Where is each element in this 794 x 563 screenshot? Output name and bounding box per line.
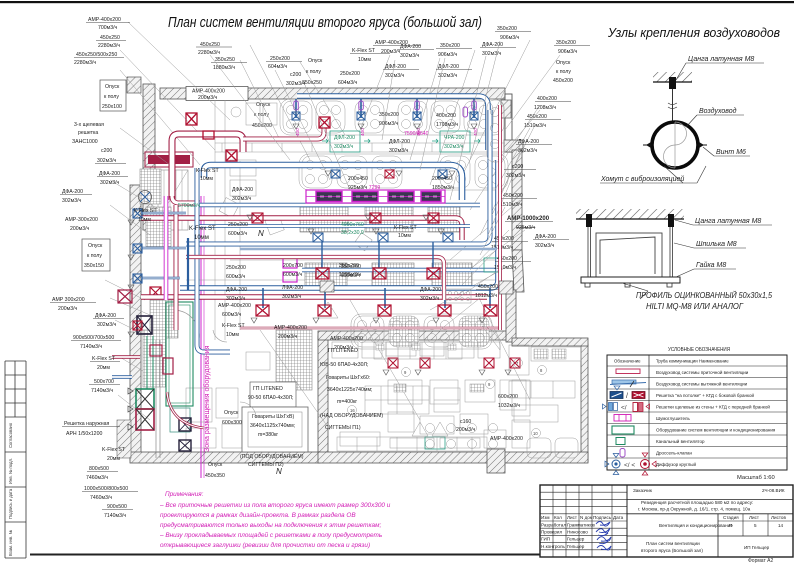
svg-text:Зона размещения оборудования: Зона размещения оборудования: [203, 345, 211, 452]
svg-text:ГИП: ГИП: [541, 537, 550, 542]
svg-text:Шумоглушитель: Шумоглушитель: [656, 416, 690, 421]
svg-text:350х200: 350х200: [497, 26, 517, 32]
svg-text:ДФЛ-200: ДФЛ-200: [385, 64, 406, 70]
svg-text:АМР-1000х200: АМР-1000х200: [507, 216, 550, 222]
svg-text:к полу: к полу: [87, 253, 102, 259]
svg-text:ПРОФИЛЬ ОЦИНКОВАННЫЙ 50х30х1,5: ПРОФИЛЬ ОЦИНКОВАННЫЙ 50х30х1,5: [636, 291, 772, 300]
svg-text:АМР-400х200: АМР-400х200: [88, 17, 121, 23]
svg-text:ЮБ-50 6ПА0-4х30Л;: ЮБ-50 6ПА0-4х30Л;: [320, 362, 368, 368]
svg-text:7590/4640: 7590/4640: [404, 131, 429, 137]
svg-text:250х200: 250х200: [226, 265, 246, 271]
svg-text:ДФА-200: ДФА-200: [62, 189, 83, 195]
svg-text:K-Flex ST: K-Flex ST: [92, 356, 116, 362]
svg-text:3-х щелевая: 3-х щелевая: [74, 122, 104, 128]
svg-text:10мм: 10мм: [138, 217, 151, 223]
svg-text:10мм: 10мм: [358, 57, 371, 63]
svg-text:Говариты ШхГхВ): Говариты ШхГхВ): [252, 414, 294, 420]
svg-text:ДФА-200: ДФА-200: [420, 287, 441, 293]
svg-text:ДФЛ-200: ДФЛ-200: [334, 135, 355, 141]
svg-text:Инв. № подл.: Инв. № подл.: [8, 458, 13, 484]
svg-text:302м3/ч: 302м3/ч: [97, 158, 117, 164]
svg-text:Цанга латунная М8: Цанга латунная М8: [695, 218, 761, 225]
svg-text:1708м3/ч: 1708м3/ч: [436, 122, 458, 128]
svg-text:90-50 6ПА0-4х30Л;: 90-50 6ПА0-4х30Л;: [248, 395, 294, 401]
svg-text:ГП LITENED: ГП LITENED: [253, 386, 283, 392]
svg-text:открывающиеся заглушки (ревизи: открывающиеся заглушки (ревизии для проч…: [160, 541, 370, 549]
svg-text:10мм: 10мм: [194, 235, 209, 241]
svg-text:600х200: 600х200: [498, 394, 518, 400]
svg-text:2Ч-08.ВИК: 2Ч-08.ВИК: [762, 488, 785, 493]
svg-text:1208м3/ч: 1208м3/ч: [534, 105, 556, 111]
svg-text:302м3/ч: 302м3/ч: [62, 198, 82, 204]
svg-text:1880м3/ч: 1880м3/ч: [213, 65, 235, 71]
svg-text:302м3/ч: 302м3/ч: [400, 53, 420, 59]
svg-text:1000х500/800х500: 1000х500/800х500: [84, 486, 128, 492]
svg-text:АМР-400х200: АМР-400х200: [330, 336, 363, 342]
svg-text:Лист: Лист: [567, 515, 578, 520]
svg-text:План систем вентиляции второго: План систем вентиляции второго яруса (бо…: [168, 15, 482, 31]
svg-text:302м3/ч: 302м3/ч: [100, 180, 120, 186]
svg-text:450х200: 450х200: [503, 193, 523, 199]
svg-text:302м3/ч: 302м3/ч: [282, 294, 302, 300]
svg-text:302м3/ч: 302м3/ч: [334, 144, 354, 150]
svg-text:Воздуховод системы вытяжной ве: Воздуховод системы вытяжной вентиляции: [656, 381, 748, 387]
svg-text:(ПОД ОБОРУДОВАНИЕМ): (ПОД ОБОРУДОВАНИЕМ): [240, 454, 304, 460]
svg-text:600м3/ч: 600м3/ч: [222, 312, 242, 318]
svg-text:ЛФА-200: ЛФА-200: [282, 285, 303, 291]
svg-text:20мм: 20мм: [107, 456, 120, 462]
svg-text:302м3/ч: 302м3/ч: [482, 51, 502, 57]
svg-text:450х200: 450х200: [252, 123, 272, 129]
svg-text:АМР-400х200: АМР-400х200: [490, 436, 523, 442]
svg-text:5: 5: [754, 523, 757, 528]
svg-text:500х700: 500х700: [94, 379, 114, 385]
svg-text:7460м3/ч: 7460м3/ч: [90, 495, 112, 501]
svg-text:N док: N док: [580, 515, 593, 520]
svg-text:УСЛОВНЫЕ ОБОЗНАЧЕНИЯ: УСЛОВНЫЕ ОБОЗНАЧЕНИЯ: [668, 347, 730, 353]
svg-text:K-Flex ST: K-Flex ST: [352, 48, 376, 54]
svg-text:1510м3/ч: 1510м3/ч: [524, 123, 546, 129]
svg-text:200м3/ч: 200м3/ч: [198, 95, 218, 101]
svg-text:ЗАНС1000: ЗАНС1000: [72, 139, 98, 145]
svg-text:ГП LITENED: ГП LITENED: [328, 348, 358, 354]
svg-text:7140м3/ч: 7140м3/ч: [91, 388, 113, 394]
svg-text:Разработал: Разработал: [541, 523, 566, 528]
svg-text:ДФА-200: ДФА-200: [95, 313, 116, 319]
svg-text:Кол: Кол: [554, 515, 562, 520]
svg-text:K-Flex ST: K-Flex ST: [102, 447, 126, 453]
svg-text:1032м3/ч: 1032м3/ч: [498, 403, 520, 409]
svg-text:к полу: к полу: [556, 69, 571, 75]
svg-text:10мм: 10мм: [226, 332, 239, 338]
svg-text:Шпилька М8: Шпилька М8: [696, 241, 737, 248]
svg-text:с200: с200: [101, 148, 112, 154]
svg-text:20мм: 20мм: [97, 365, 110, 371]
svg-text:Лист: Лист: [749, 515, 760, 520]
svg-text:ДФА-200: ДФА-200: [232, 187, 253, 193]
svg-text:1510м3/ч: 1510м3/ч: [500, 202, 522, 208]
svg-text:План систем вентиляции: План систем вентиляции: [646, 541, 700, 546]
svg-text:250х200: 250х200: [340, 71, 360, 77]
svg-text:Опуск: Опуск: [308, 58, 323, 64]
svg-text:7140м3/ч: 7140м3/ч: [104, 513, 126, 519]
svg-text:450х250: 450х250: [100, 35, 120, 41]
svg-text:АМР-400х200: АМР-400х200: [218, 303, 251, 309]
svg-text:400х200: 400х200: [436, 113, 456, 119]
svg-text:Опуск: Опуск: [208, 462, 223, 468]
svg-text:3640х1225х740мм;: 3640х1225х740мм;: [327, 387, 373, 393]
svg-text:Обозначение: Обозначение: [614, 359, 641, 364]
svg-text:с200: с200: [290, 72, 301, 78]
svg-text:Решетка "на потолке" + КГД с б: Решетка "на потолке" + КГД с боковой бра…: [656, 392, 754, 398]
svg-text:проектируются в рамках дизайн-: проектируются в рамках дизайн-проекта. В…: [160, 511, 356, 519]
svg-text:ДФА-200: ДФА-200: [99, 171, 120, 177]
svg-text:3640х1125х740мм;: 3640х1125х740мм;: [250, 423, 295, 429]
svg-text:450х250/500х250: 450х250/500х250: [76, 52, 117, 58]
svg-text:Опуск: Опуск: [105, 84, 120, 90]
svg-text:АМР-400х200: АМР-400х200: [192, 89, 225, 95]
svg-text:</: </: [621, 405, 627, 412]
svg-text:1208м3/ч: 1208м3/ч: [339, 272, 361, 278]
svg-text:604м3/ч: 604м3/ч: [338, 80, 358, 86]
svg-text:К-Flex ST: К-Flex ST: [222, 323, 245, 329]
svg-text:ИП Гельцер: ИП Гельцер: [744, 545, 770, 550]
svg-text:Взам. инв. №: Взам. инв. №: [8, 530, 13, 556]
svg-text:Н.контроль: Н.контроль: [541, 544, 566, 549]
svg-text:Ниносово: Ниносово: [567, 530, 588, 535]
svg-text:Изм: Изм: [541, 515, 550, 520]
svg-text:900х500/700х500: 900х500/700х500: [73, 335, 114, 341]
svg-text:m=400кг: m=400кг: [337, 399, 357, 405]
svg-text:Диффузор круглый: Диффузор круглый: [656, 461, 697, 467]
svg-text:ДФА-200: ДФА-200: [535, 234, 556, 240]
svg-text:906м3/ч: 906м3/ч: [558, 49, 578, 55]
svg-text:302м3/ч: 302м3/ч: [385, 73, 405, 79]
svg-text:200х450: 200х450: [348, 176, 368, 182]
svg-text:900х500: 900х500: [107, 504, 127, 510]
svg-text:Формат А2: Формат А2: [748, 558, 773, 563]
svg-text:2280м3/ч: 2280м3/ч: [74, 60, 96, 66]
svg-text:302м3/ч: 302м3/ч: [286, 81, 306, 87]
svg-text:450х200: 450х200: [527, 114, 547, 120]
svg-text:906м3/ч: 906м3/ч: [438, 52, 458, 58]
svg-text:</ <: </ <: [624, 462, 635, 469]
svg-text:250х200: 250х200: [228, 222, 248, 228]
svg-text:СИГТЕМЫ П1): СИГТЕМЫ П1): [325, 425, 361, 431]
svg-text:600м3/ч: 600м3/ч: [226, 274, 246, 280]
svg-text:350х200: 350х200: [556, 40, 576, 46]
svg-text:Гельцер: Гельцер: [567, 544, 585, 549]
svg-text:2280м3/ч: 2280м3/ч: [198, 50, 220, 56]
svg-text:1850м3/ч: 1850м3/ч: [432, 185, 454, 191]
svg-text:к полу: к полу: [306, 69, 321, 75]
svg-text:10мм: 10мм: [398, 233, 411, 239]
svg-text:П: П: [729, 523, 732, 528]
svg-text:925м3/ч: 925м3/ч: [516, 225, 536, 231]
svg-text:600м3/ч: 600м3/ч: [283, 272, 303, 278]
svg-text:10: 10: [533, 431, 538, 436]
svg-text:К-Flex ST: К-Flex ST: [394, 225, 417, 231]
svg-text:Дроссель-клапан: Дроссель-клапан: [656, 451, 692, 456]
svg-text:700м3/ч: 700м3/ч: [98, 25, 118, 31]
svg-text:второго яруса (Большой зал): второго яруса (Большой зал): [641, 547, 703, 553]
svg-text:Воздуховод: Воздуховод: [699, 107, 737, 115]
svg-text:Цанга латунная М8: Цанга латунная М8: [688, 56, 754, 63]
svg-text:450х200: 450х200: [494, 236, 514, 242]
svg-text:604м3/ч: 604м3/ч: [268, 64, 288, 70]
svg-text:АРН 1/50х1200: АРН 1/50х1200: [66, 431, 102, 437]
svg-text:Вентиляция и кондиционирование: Вентиляция и кондиционирование: [659, 523, 733, 528]
svg-text:m=380кг: m=380кг: [258, 432, 278, 438]
svg-text:Гайка М8: Гайка М8: [696, 261, 726, 269]
svg-text:1510м3/ч: 1510м3/ч: [494, 265, 516, 271]
svg-text:АМР 300х200: АМР 300х200: [52, 297, 85, 303]
svg-text:350х200: 350х200: [379, 112, 399, 118]
svg-text:N: N: [276, 467, 282, 476]
svg-text:Узлы крепления воздуховодов: Узлы крепления воздуховодов: [607, 25, 780, 40]
svg-text:350х200: 350х200: [339, 263, 359, 269]
svg-text:38,2х30,9: 38,2х30,9: [341, 230, 364, 236]
svg-text:к полу: к полу: [254, 112, 269, 118]
svg-text:Подпись: Подпись: [593, 515, 612, 520]
svg-text:10мм: 10мм: [200, 176, 213, 182]
svg-text:302м3/ч: 302м3/ч: [389, 148, 409, 154]
svg-text:302м3/ч: 302м3/ч: [97, 322, 117, 328]
svg-text:450х200: 450х200: [553, 78, 573, 84]
svg-text:14: 14: [778, 523, 784, 528]
svg-text:Труба коммуникации Наименова: Труба коммуникации Наименование: [656, 359, 729, 364]
svg-text:K-Flex ST: K-Flex ST: [189, 226, 216, 232]
svg-text:– Все приточные решетки из пол: – Все приточные решетки из пола второго …: [159, 502, 391, 509]
svg-text:600м3/ч: 600м3/ч: [228, 231, 248, 237]
svg-text:Воздуховод системы приточной в: Воздуховод системы приточной вентиляции: [656, 369, 749, 375]
svg-text:Дата: Дата: [613, 515, 624, 520]
svg-text:302м3/ч: 302м3/ч: [444, 144, 464, 150]
svg-text:г. Москва, пр-д Окружной, д. 1: г. Москва, пр-д Окружной, д. 16/1, стр. …: [638, 506, 751, 512]
svg-text:302м3/ч: 302м3/ч: [535, 243, 555, 249]
svg-text:200х450: 200х450: [432, 176, 452, 182]
svg-text:Примечания:: Примечания:: [165, 491, 204, 498]
svg-text:400х200: 400х200: [537, 96, 557, 102]
svg-text:Подпись и дата: Подпись и дата: [8, 488, 13, 519]
svg-text:АМР-300х200: АМР-300х200: [65, 217, 98, 223]
svg-text:200м3/ч: 200м3/ч: [278, 334, 298, 340]
svg-text:302м3/ч: 302м3/ч: [518, 148, 538, 154]
svg-text:Канальный вентилятор: Канальный вентилятор: [656, 438, 705, 444]
svg-text:250х100: 250х100: [102, 104, 122, 110]
svg-text:Листов: Листов: [771, 515, 786, 520]
svg-text:5700м3/ч: 5700м3/ч: [178, 203, 200, 209]
svg-text:Резиденция расчетной площадью: Резиденция расчетной площадью 580 м2 по …: [641, 499, 753, 505]
svg-text:906м3/ч: 906м3/ч: [379, 121, 399, 127]
svg-text:К-Flex ST: К-Flex ST: [196, 168, 219, 174]
svg-text:– Внизу прокладываемых площаде: – Внизу прокладываемых площадей с решетк…: [159, 531, 382, 539]
svg-text:302м3/ч: 302м3/ч: [420, 296, 440, 302]
svg-text:7460м3/ч: 7460м3/ч: [86, 475, 108, 481]
svg-text:800х500: 800х500: [89, 466, 109, 472]
svg-text:ДФЛ-200: ДФЛ-200: [438, 64, 459, 70]
svg-text:1812м3/ч: 1812м3/ч: [475, 293, 497, 299]
svg-text:600х300: 600х300: [222, 420, 242, 426]
svg-text:925м3/ч 7299: 925м3/ч 7299: [348, 185, 380, 191]
svg-text:2280м3/ч: 2280м3/ч: [98, 43, 120, 49]
svg-text:7140м3/ч: 7140м3/ч: [80, 344, 102, 350]
svg-text:450х200: 450х200: [478, 284, 498, 290]
svg-text:350х200: 350х200: [440, 43, 460, 49]
svg-text:К-Flex ST: К-Flex ST: [134, 208, 157, 214]
svg-text:200х700: 200х700: [283, 263, 303, 269]
svg-text:200м3/ч: 200м3/ч: [381, 49, 401, 55]
svg-text:/: /: [626, 393, 628, 400]
svg-text:350х150: 350х150: [84, 263, 104, 269]
svg-text:(НАД ОБОРУДОВАНИЕМ): (НАД ОБОРУДОВАНИЕМ): [320, 413, 383, 419]
svg-text:Опуск: Опуск: [88, 243, 103, 249]
svg-text:решетка: решетка: [78, 130, 98, 136]
svg-text:Хомут с виброизоляцией: Хомут с виброизоляцией: [600, 175, 684, 183]
svg-text:Заказчик: Заказчик: [633, 488, 653, 493]
svg-text:АМР-400х200: АМР-400х200: [274, 325, 307, 331]
svg-text:Решетка наружная: Решетка наружная: [64, 421, 110, 427]
svg-text:ДФА-200: ДФА-200: [226, 287, 247, 293]
svg-text:HILTI MQ-М8 ИЛИ АНАЛОГ: HILTI MQ-М8 ИЛИ АНАЛОГ: [646, 302, 744, 311]
svg-text:Масштаб 1:60: Масштаб 1:60: [737, 475, 775, 481]
svg-text:200м3/ч: 200м3/ч: [70, 226, 90, 232]
svg-text:906м3/ч: 906м3/ч: [500, 35, 520, 41]
svg-text:Оборудование систем вентиляции: Оборудование систем вентиляции и кондици…: [656, 428, 776, 433]
svg-text:АМР-400х200: АМР-400х200: [375, 40, 408, 46]
svg-text:к полу: к полу: [104, 94, 119, 100]
svg-text:302м3/ч: 302м3/ч: [226, 296, 246, 302]
svg-text:350х250: 350х250: [215, 57, 235, 63]
svg-text:предусматриваются только выход: предусматриваются только выходы на подкл…: [160, 521, 381, 529]
svg-text:302м3/ч: 302м3/ч: [232, 196, 252, 202]
svg-text:ДФА-200: ДФА-200: [482, 42, 503, 48]
svg-text:ДФЛ-200: ДФЛ-200: [389, 139, 410, 145]
svg-text:Грамматиков: Грамматиков: [567, 523, 595, 528]
svg-text:Решетки щелевые из стены + КГД: Решетки щелевые из стены + КГД с передне…: [656, 404, 770, 410]
svg-text:Гельцер: Гельцер: [567, 537, 585, 542]
svg-text:Винт М6: Винт М6: [716, 149, 746, 156]
svg-text:Проверил: Проверил: [541, 530, 562, 535]
svg-text:Опуск: Опуск: [224, 410, 239, 416]
svg-text:450х350: 450х350: [205, 473, 225, 479]
svg-text:ЧРА-200: ЧРА-200: [444, 135, 465, 141]
svg-text:4990х760: 4990х760: [341, 222, 364, 228]
svg-text:N: N: [258, 229, 264, 238]
svg-text:200м3/ч: 200м3/ч: [456, 427, 476, 433]
svg-text:Опуск: Опуск: [556, 60, 571, 66]
svg-text:200м3/ч: 200м3/ч: [58, 306, 78, 312]
svg-text:Согласовано: Согласовано: [8, 422, 13, 448]
svg-text:Говариты ШхГх60:: Говариты ШхГх60:: [326, 375, 370, 381]
svg-text:Стадия: Стадия: [723, 515, 739, 520]
svg-text:250х200: 250х200: [270, 56, 290, 62]
